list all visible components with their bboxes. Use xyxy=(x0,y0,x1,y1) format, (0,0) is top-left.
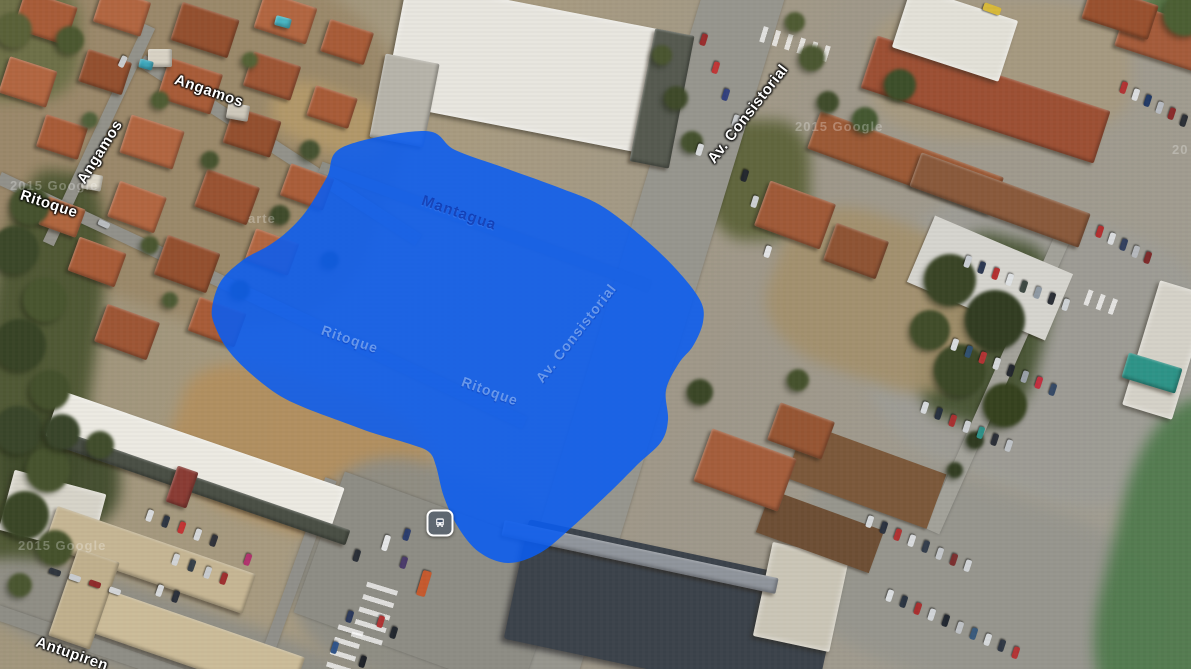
highlight-polygon[interactable] xyxy=(212,131,704,563)
imagery-watermark: arte xyxy=(248,211,276,226)
imagery-watermark: 2015 Google xyxy=(795,119,883,134)
imagery-watermark: 2015 Google xyxy=(10,178,98,193)
bus-glyph xyxy=(434,517,447,530)
imagery-watermark: 2015 Google xyxy=(18,538,106,553)
map-viewport[interactable]: AngamosAngamosRitoqueAv. ConsistorialAnt… xyxy=(0,0,1191,669)
imagery-watermark: 20 xyxy=(1172,142,1188,157)
bus-stop-icon[interactable] xyxy=(427,510,454,537)
selected-area-overlay[interactable] xyxy=(0,0,1191,669)
